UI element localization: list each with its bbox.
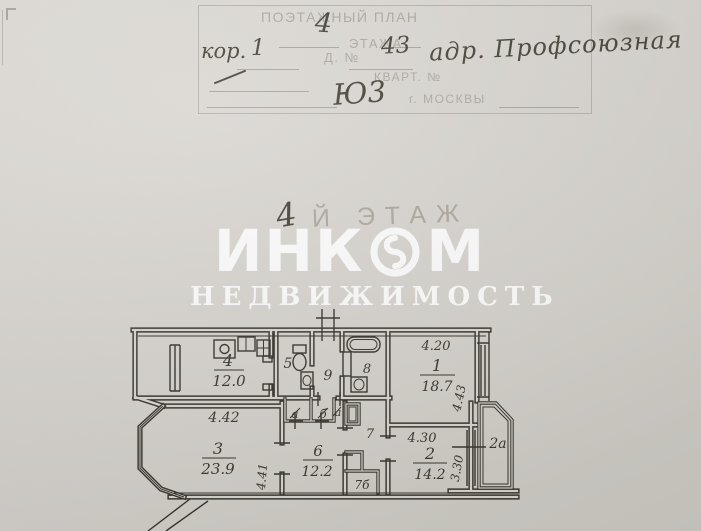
room3-depth-dim: 4.41 (254, 463, 270, 492)
closet-a-label: а (291, 407, 298, 421)
room9-number: 9 (324, 368, 333, 384)
photographed-floor-plan-document: ПОЭТАЖНЫЙ ПЛАН ЭТАЖА Д. № КВАРТ. № г. МО… (0, 0, 701, 531)
room2-number: 2 (424, 444, 435, 463)
closet-c-label: а (335, 406, 342, 419)
room6-number: 6 (313, 442, 323, 460)
bathroom-door-panel (343, 352, 351, 376)
toilet-bowl-icon (293, 354, 306, 371)
room5-number: 5 (284, 356, 293, 372)
room4-area: 12.0 (212, 372, 246, 390)
toilet-tank-icon (293, 345, 306, 353)
room4-number: 4 (222, 351, 233, 370)
floor-plan-drawing: 4 12.0 5 9 8 4.20 1 18.7 4.43 4.42 3 23.… (0, 0, 701, 531)
room1-area: 18.7 (421, 379, 452, 395)
room1-width-dim: 4.20 (421, 339, 451, 354)
closet-b-label: б (319, 407, 327, 421)
balcony-label: 2а (488, 436, 506, 452)
building-outline-extension (148, 499, 208, 531)
room8-number: 8 (363, 362, 371, 377)
room3-number: 3 (213, 439, 223, 458)
room-labels: 4 12.0 5 9 8 4.20 1 18.7 4.43 4.42 3 23.… (200, 339, 506, 492)
room6-area: 12.2 (301, 464, 332, 480)
kitchen-window (170, 345, 180, 391)
room3-area: 23.9 (200, 460, 235, 478)
room7-number: 7 (366, 427, 375, 442)
room1-number: 1 (432, 356, 442, 375)
room7-closet-label: 7б (355, 478, 371, 492)
room2-depth-dim: 3.30 (448, 454, 466, 483)
room3-width-dim: 4.42 (207, 410, 239, 426)
room2-area: 14.2 (414, 467, 445, 483)
